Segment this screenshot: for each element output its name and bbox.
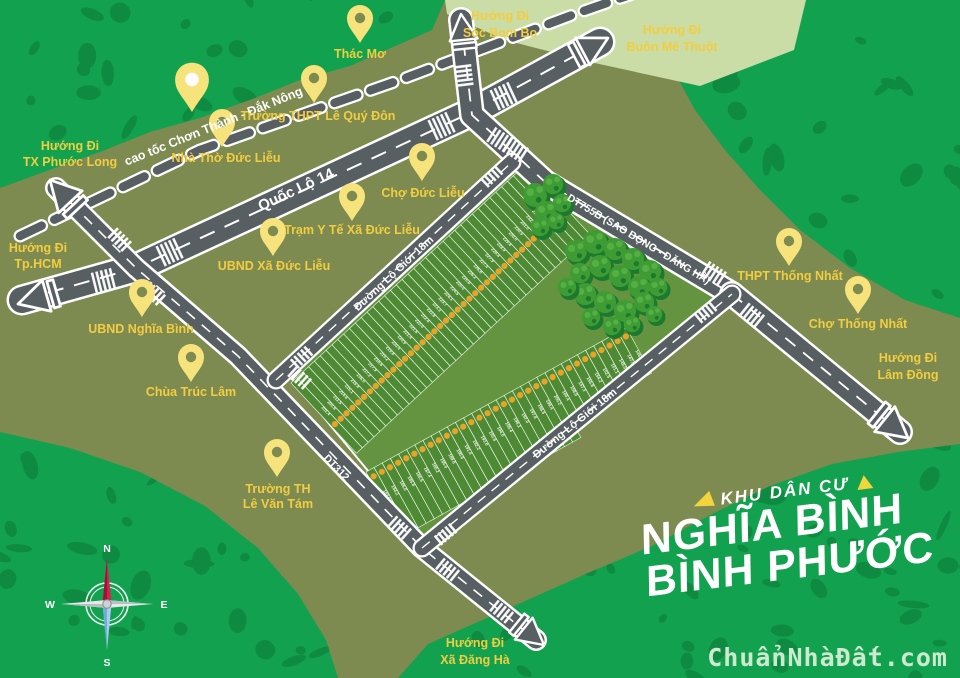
label-cho-duc-lieu: Chợ Đức Liễu [381, 185, 464, 200]
compass-hub [103, 600, 111, 608]
label-soc-bom-bo-1: Hướng Đi [471, 9, 529, 23]
label-chua-truc-lam: Chùa Trúc Lâm [146, 385, 236, 399]
label-tp-hcm-1: Hướng Đi [9, 241, 67, 255]
label-xa-dang-ha-1: Hướng Đi [446, 636, 504, 650]
label-tram-y-te: Trạm Y Tế Xã Đức Liễu [284, 222, 420, 237]
label-nha-tho: Nhà Thờ Đức Liễu [172, 150, 281, 165]
compass-w: W [45, 599, 55, 611]
label-thac-mo: Thác Mơ [334, 47, 386, 61]
label-ubnd-xa-duc-lieu: UBND Xã Đức Liễu [218, 258, 331, 273]
label-ubnd-nghia-binh: UBND Nghĩa Bình [88, 322, 194, 336]
label-lam-dong-2: Lâm Đồng [877, 368, 938, 382]
label-cho-thong-nhat: Chợ Thống Nhất [809, 317, 908, 331]
compass-n: N [103, 543, 111, 555]
label-lam-dong-1: Hướng Đi [879, 351, 937, 365]
compass-s: S [103, 657, 110, 669]
label-le-van-tam-1: Trường TH [245, 482, 310, 496]
label-le-van-tam-2: Lê Văn Tám [243, 497, 313, 511]
label-buon-me-thuot-1: Hướng Đi [643, 23, 701, 37]
label-tx-phuoc-long-1: Hướng Đi [41, 139, 99, 153]
label-soc-bom-bo-2: Sóc Bom Bo [463, 26, 538, 40]
label-xa-dang-ha-2: Xã Đăng Hà [440, 653, 510, 667]
label-tx-phuoc-long-2: TX Phước Long [23, 155, 117, 169]
label-thpt-thong-nhat: THPT Thống Nhất [737, 269, 843, 283]
label-tp-hcm-2: Tp.HCM [14, 257, 61, 271]
compass-e: E [160, 599, 167, 611]
label-buon-me-thuot-2: Buôn Mê Thuột [627, 40, 719, 54]
map-poster: 201.4202.8211.5214.4215.1215.8216.5217.2… [0, 0, 960, 678]
label-le-quy-don: Trường THPT Lê Quý Đôn [241, 109, 396, 123]
watermark: ChuẩnNhàĐất.com [707, 643, 948, 672]
